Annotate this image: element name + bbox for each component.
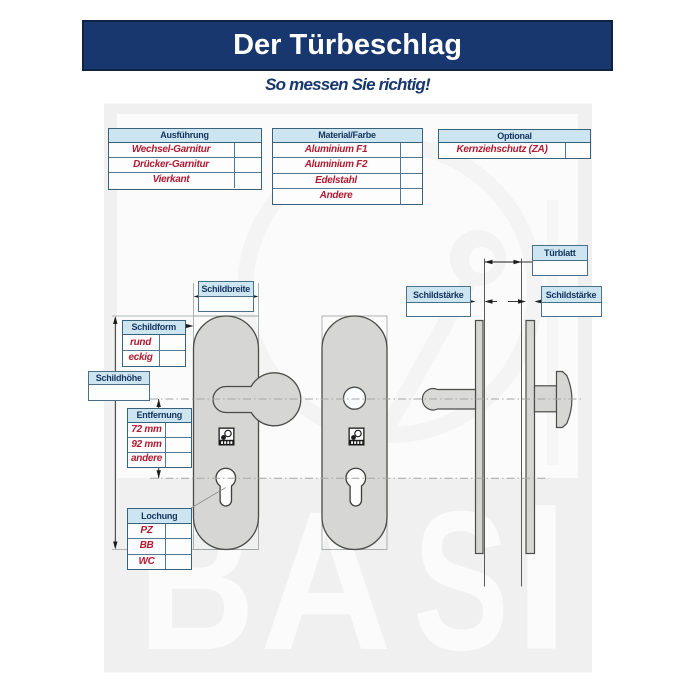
- svg-text:S: S: [413, 470, 509, 691]
